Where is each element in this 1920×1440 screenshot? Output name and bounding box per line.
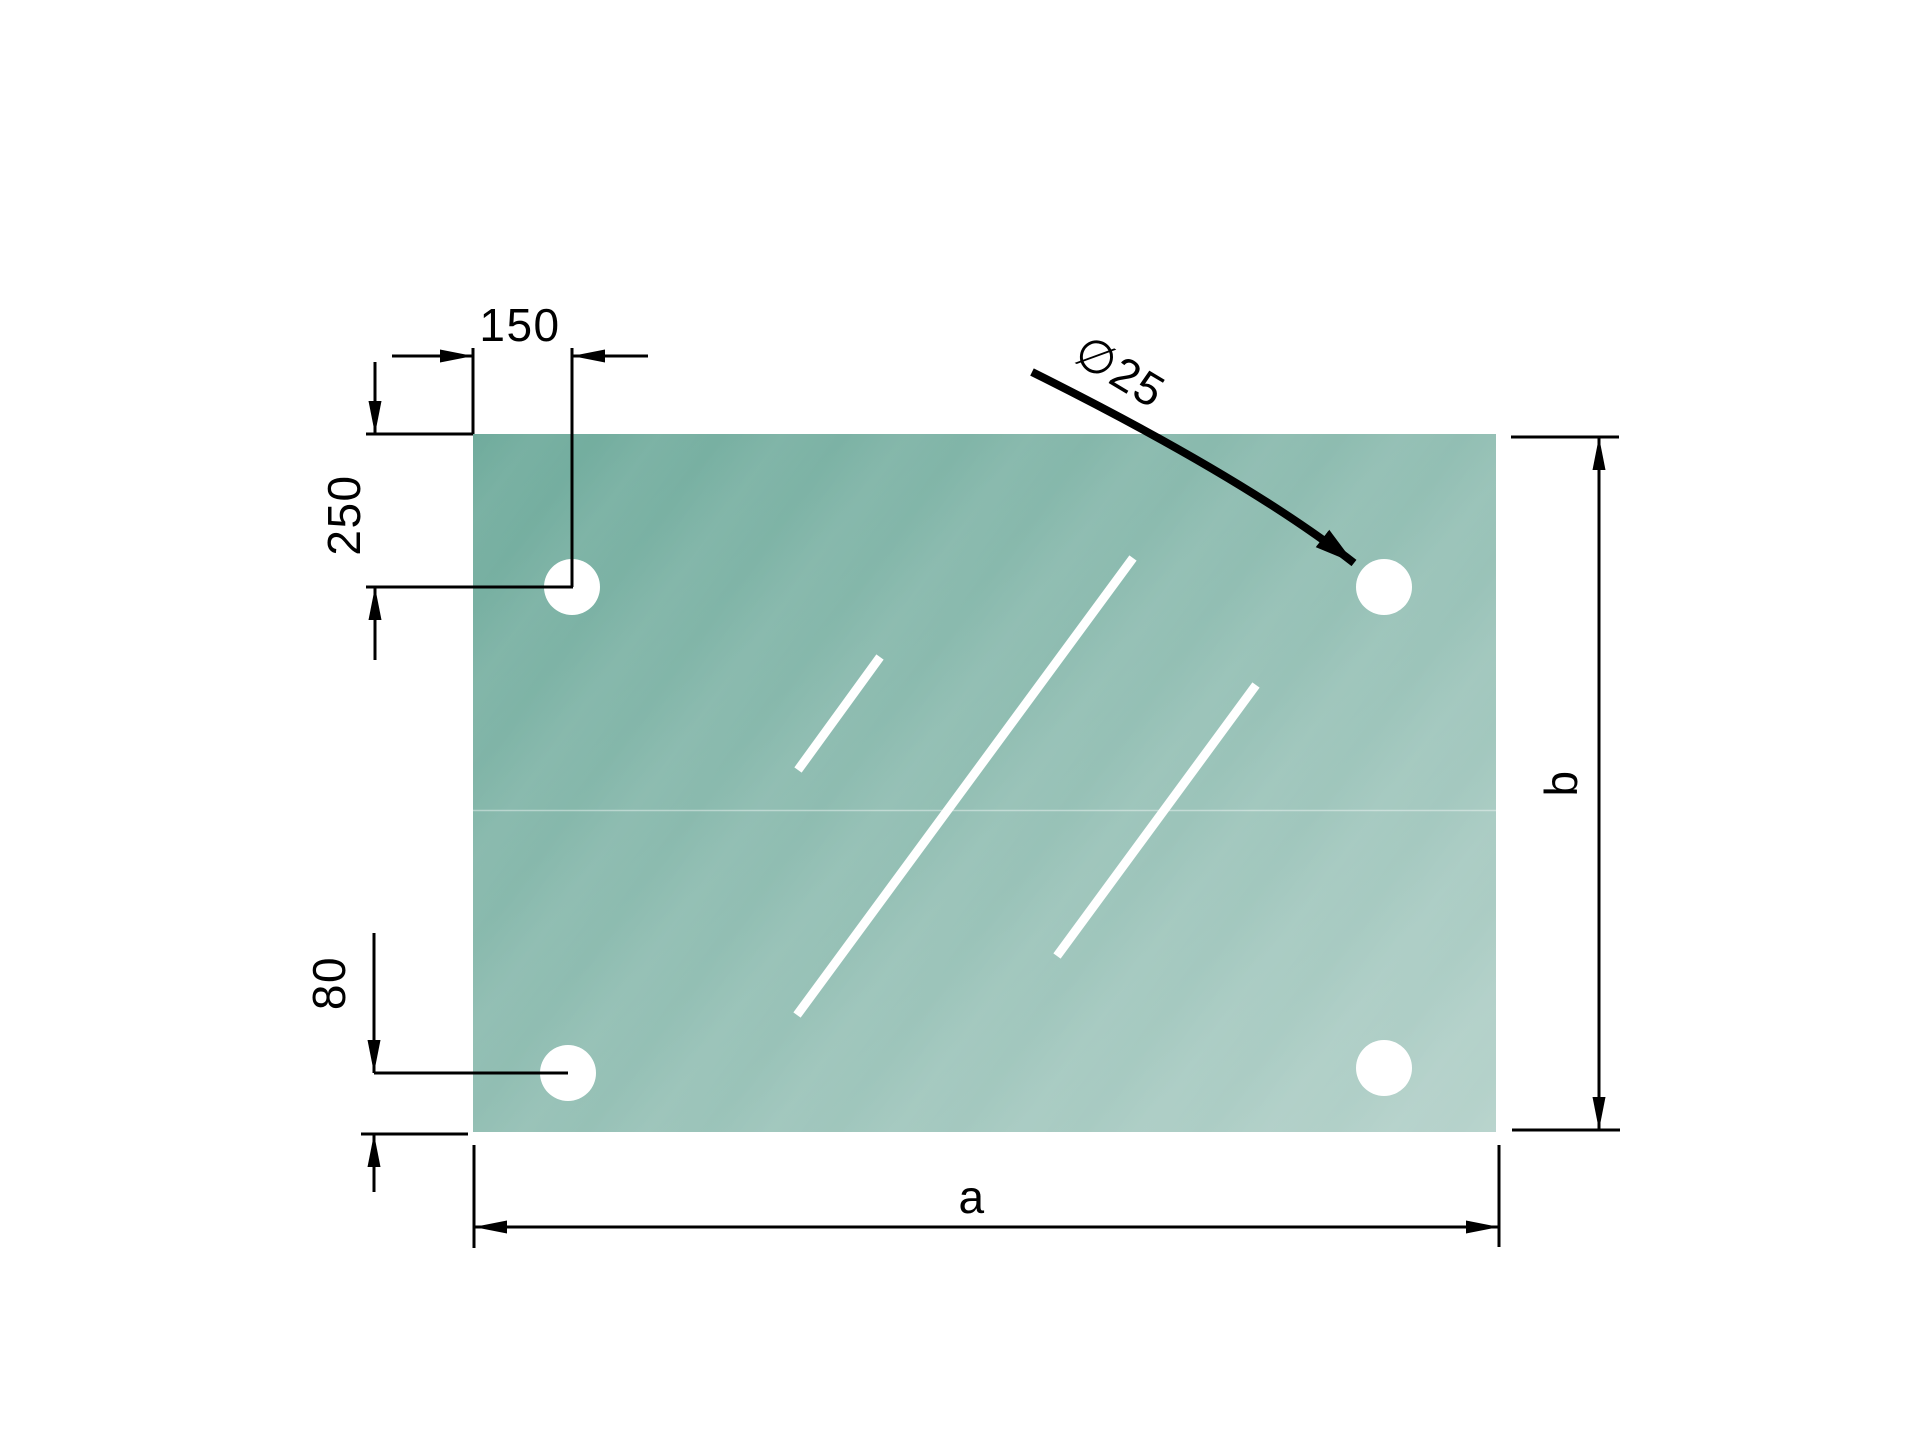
drawing-canvas: 150 250 80 a	[0, 0, 1920, 1440]
dim-80-label: 80	[303, 956, 355, 1010]
dim-a: a	[474, 1145, 1499, 1248]
glass-sheen-overlay	[473, 434, 1496, 1132]
dim-150-label: 150	[479, 299, 560, 351]
dim-250-label: 250	[318, 474, 370, 555]
hole-bottom-right	[1356, 1040, 1412, 1096]
dim-b: b	[1511, 437, 1620, 1130]
dim-b-label: b	[1535, 769, 1587, 796]
dim-diameter-label: ∅25	[1066, 324, 1175, 418]
hole-top-right	[1356, 559, 1412, 615]
dim-a-label: a	[958, 1171, 985, 1223]
technical-drawing: 150 250 80 a	[0, 0, 1920, 1440]
